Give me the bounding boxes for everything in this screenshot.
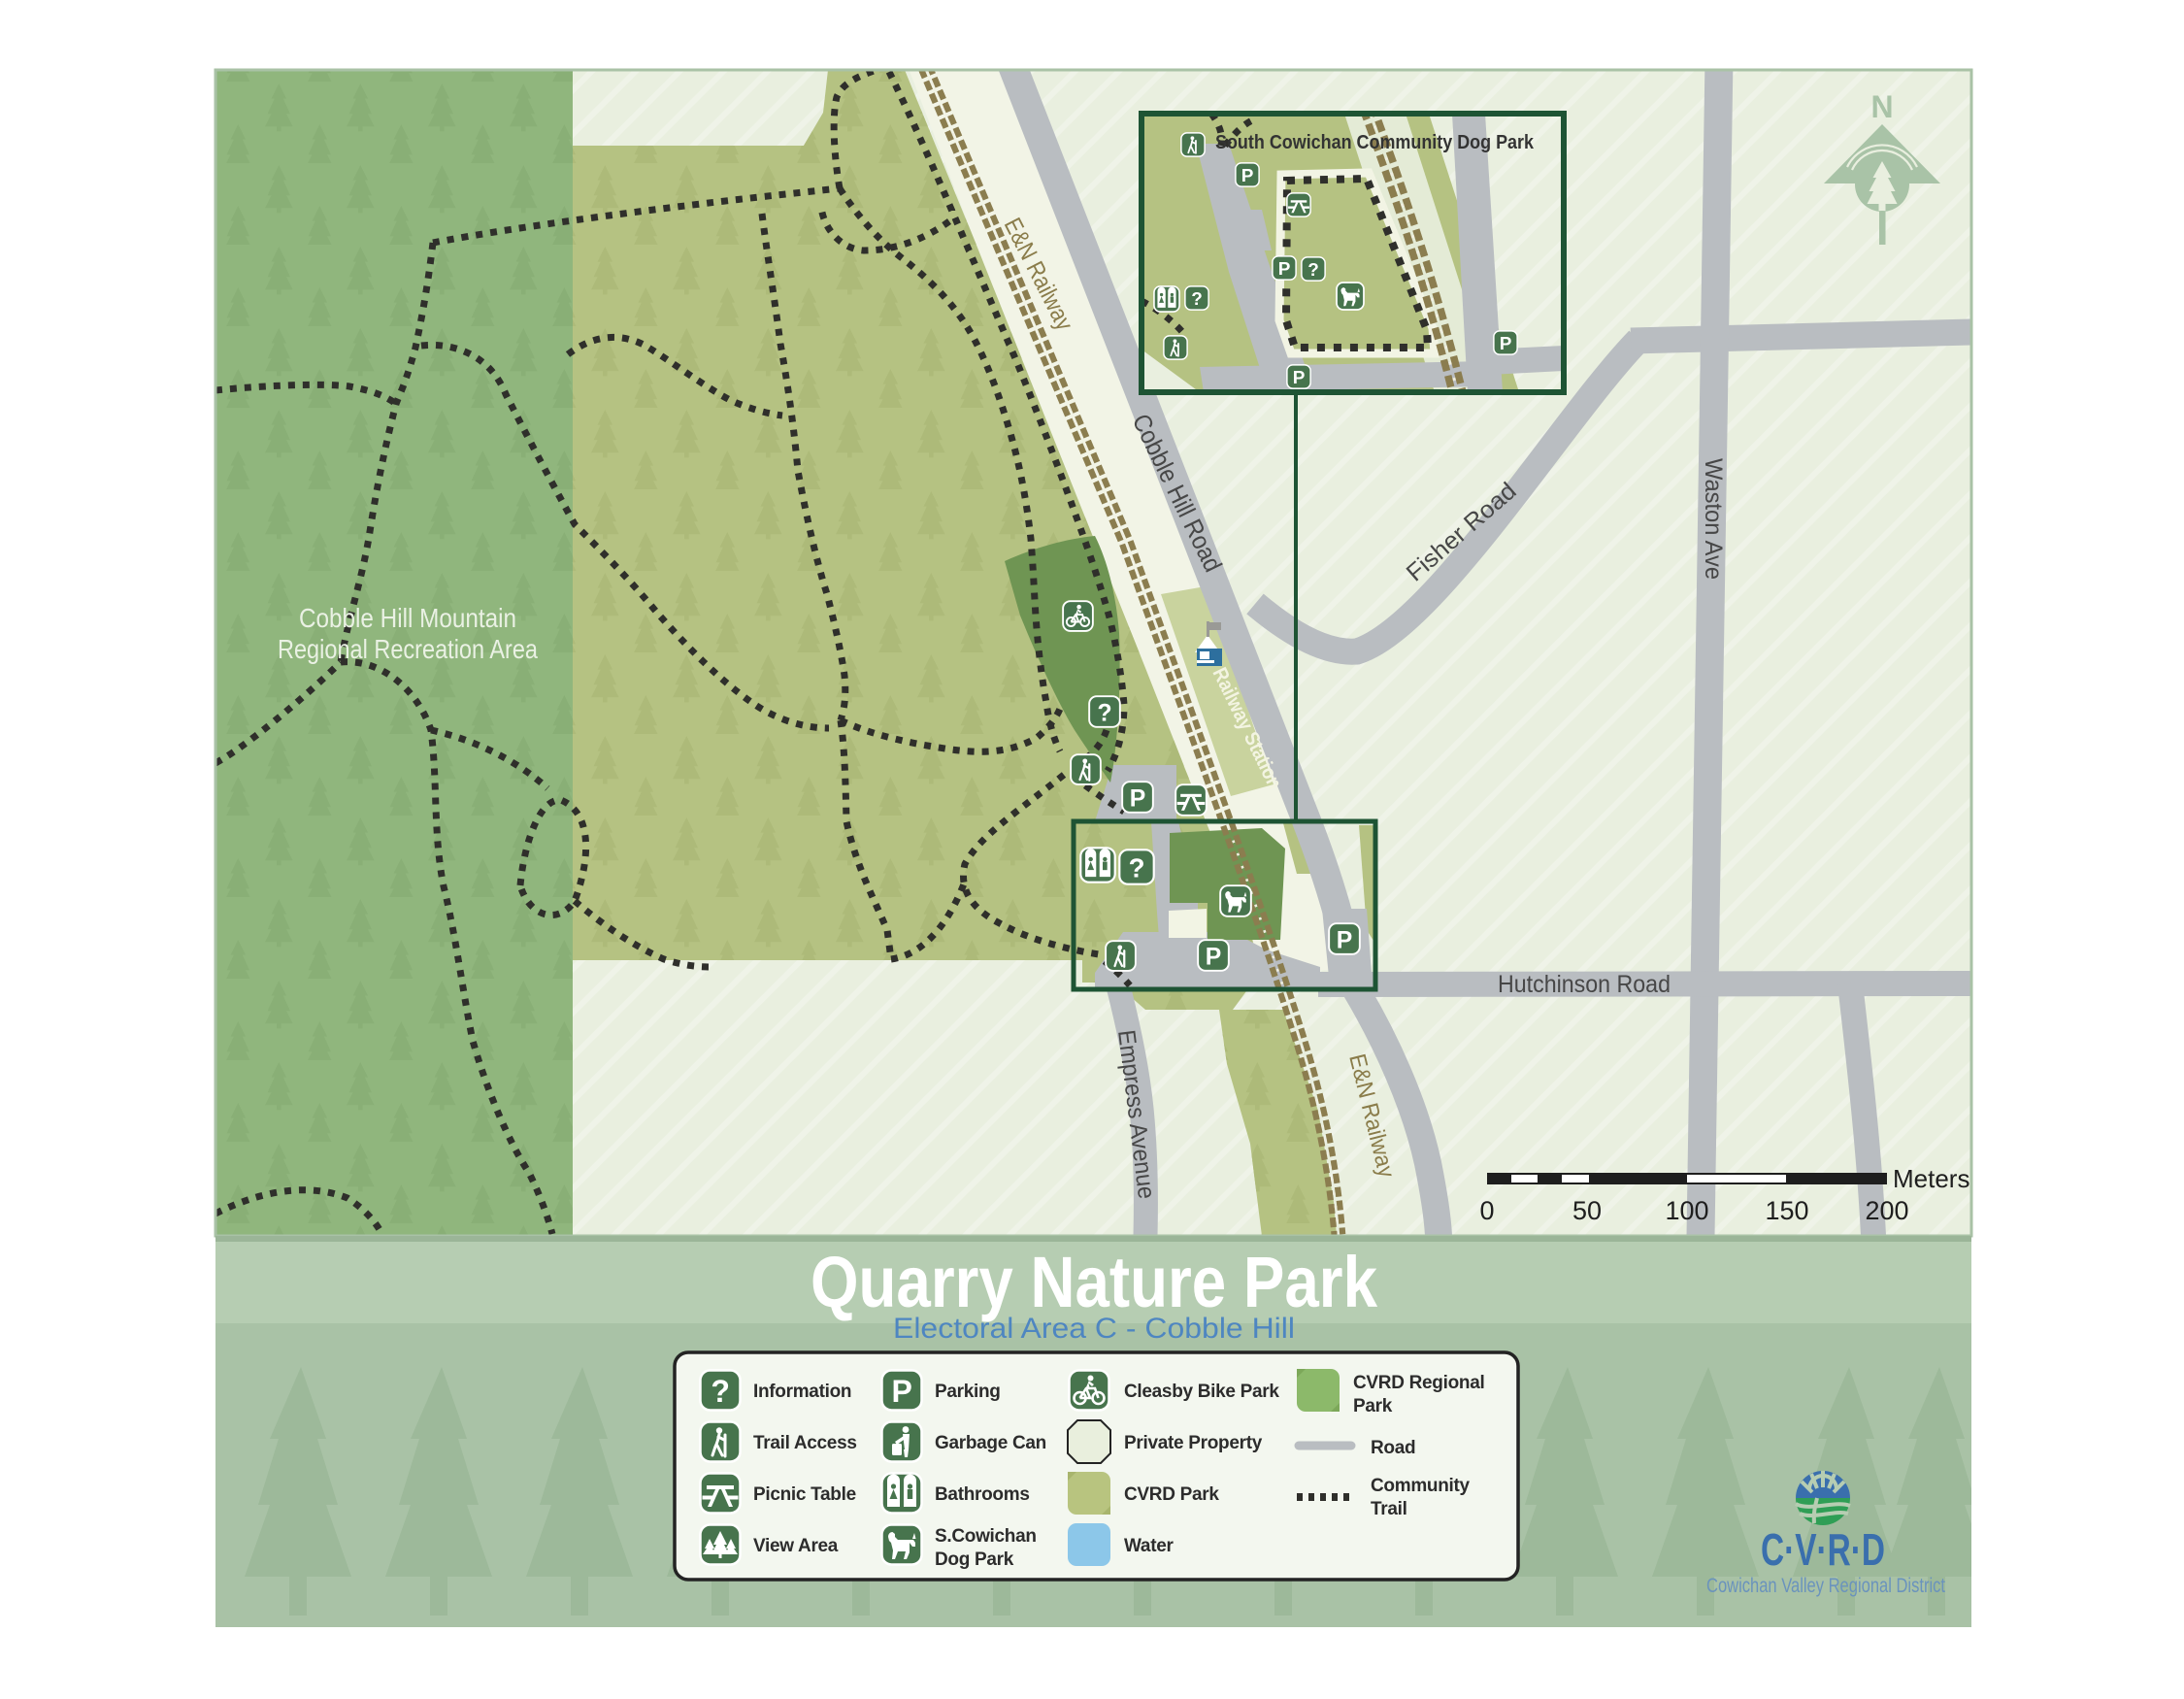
svg-text:Waston Ave: Waston Ave (1700, 458, 1727, 580)
svg-text:Meters: Meters (1893, 1164, 1969, 1193)
svg-text:Cowichan Valley Regional Distr: Cowichan Valley Regional District (1706, 1575, 1945, 1597)
svg-text:100: 100 (1665, 1196, 1708, 1225)
svg-text:S.Cowichan: S.Cowichan (935, 1526, 1037, 1547)
svg-text:200: 200 (1865, 1196, 1908, 1225)
svg-text:Dog Park: Dog Park (935, 1549, 1014, 1570)
svg-text:CVRD Park: CVRD Park (1124, 1484, 1219, 1505)
svg-text:Trail: Trail (1371, 1499, 1407, 1519)
svg-text:Park: Park (1353, 1396, 1393, 1416)
svg-text:0: 0 (1479, 1196, 1494, 1225)
svg-text:Regional Recreation Area: Regional Recreation Area (278, 634, 538, 664)
svg-text:Information: Information (753, 1382, 851, 1402)
svg-text:150: 150 (1765, 1196, 1808, 1225)
svg-text:N: N (1870, 89, 1893, 124)
svg-text:Road: Road (1371, 1438, 1415, 1458)
svg-text:Garbage Can: Garbage Can (935, 1433, 1046, 1453)
svg-text:Electoral Area C - Cobble Hill: Electoral Area C - Cobble Hill (893, 1313, 1295, 1345)
svg-text:Water: Water (1124, 1536, 1174, 1556)
svg-text:Parking: Parking (935, 1382, 1001, 1402)
svg-text:Cleasby Bike Park: Cleasby Bike Park (1124, 1382, 1279, 1402)
svg-text:50: 50 (1572, 1196, 1602, 1225)
svg-text:Cobble Hill Mountain: Cobble Hill Mountain (299, 603, 516, 633)
svg-text:CVRD Regional: CVRD Regional (1353, 1373, 1484, 1393)
svg-text:C·V·R·D: C·V·R·D (1761, 1524, 1885, 1575)
svg-text:Community: Community (1371, 1476, 1471, 1496)
svg-text:Quarry Nature Park: Quarry Nature Park (811, 1242, 1378, 1322)
svg-text:South Cowichan Community Dog P: South Cowichan Community Dog Park (1215, 132, 1535, 153)
svg-text:Trail Access: Trail Access (753, 1433, 857, 1453)
svg-text:Hutchinson Road: Hutchinson Road (1498, 971, 1671, 998)
svg-text:Bathrooms: Bathrooms (935, 1484, 1030, 1505)
svg-text:Private Property: Private Property (1124, 1433, 1263, 1453)
svg-text:View Area: View Area (753, 1536, 839, 1556)
svg-text:Picnic Table: Picnic Table (753, 1484, 856, 1505)
